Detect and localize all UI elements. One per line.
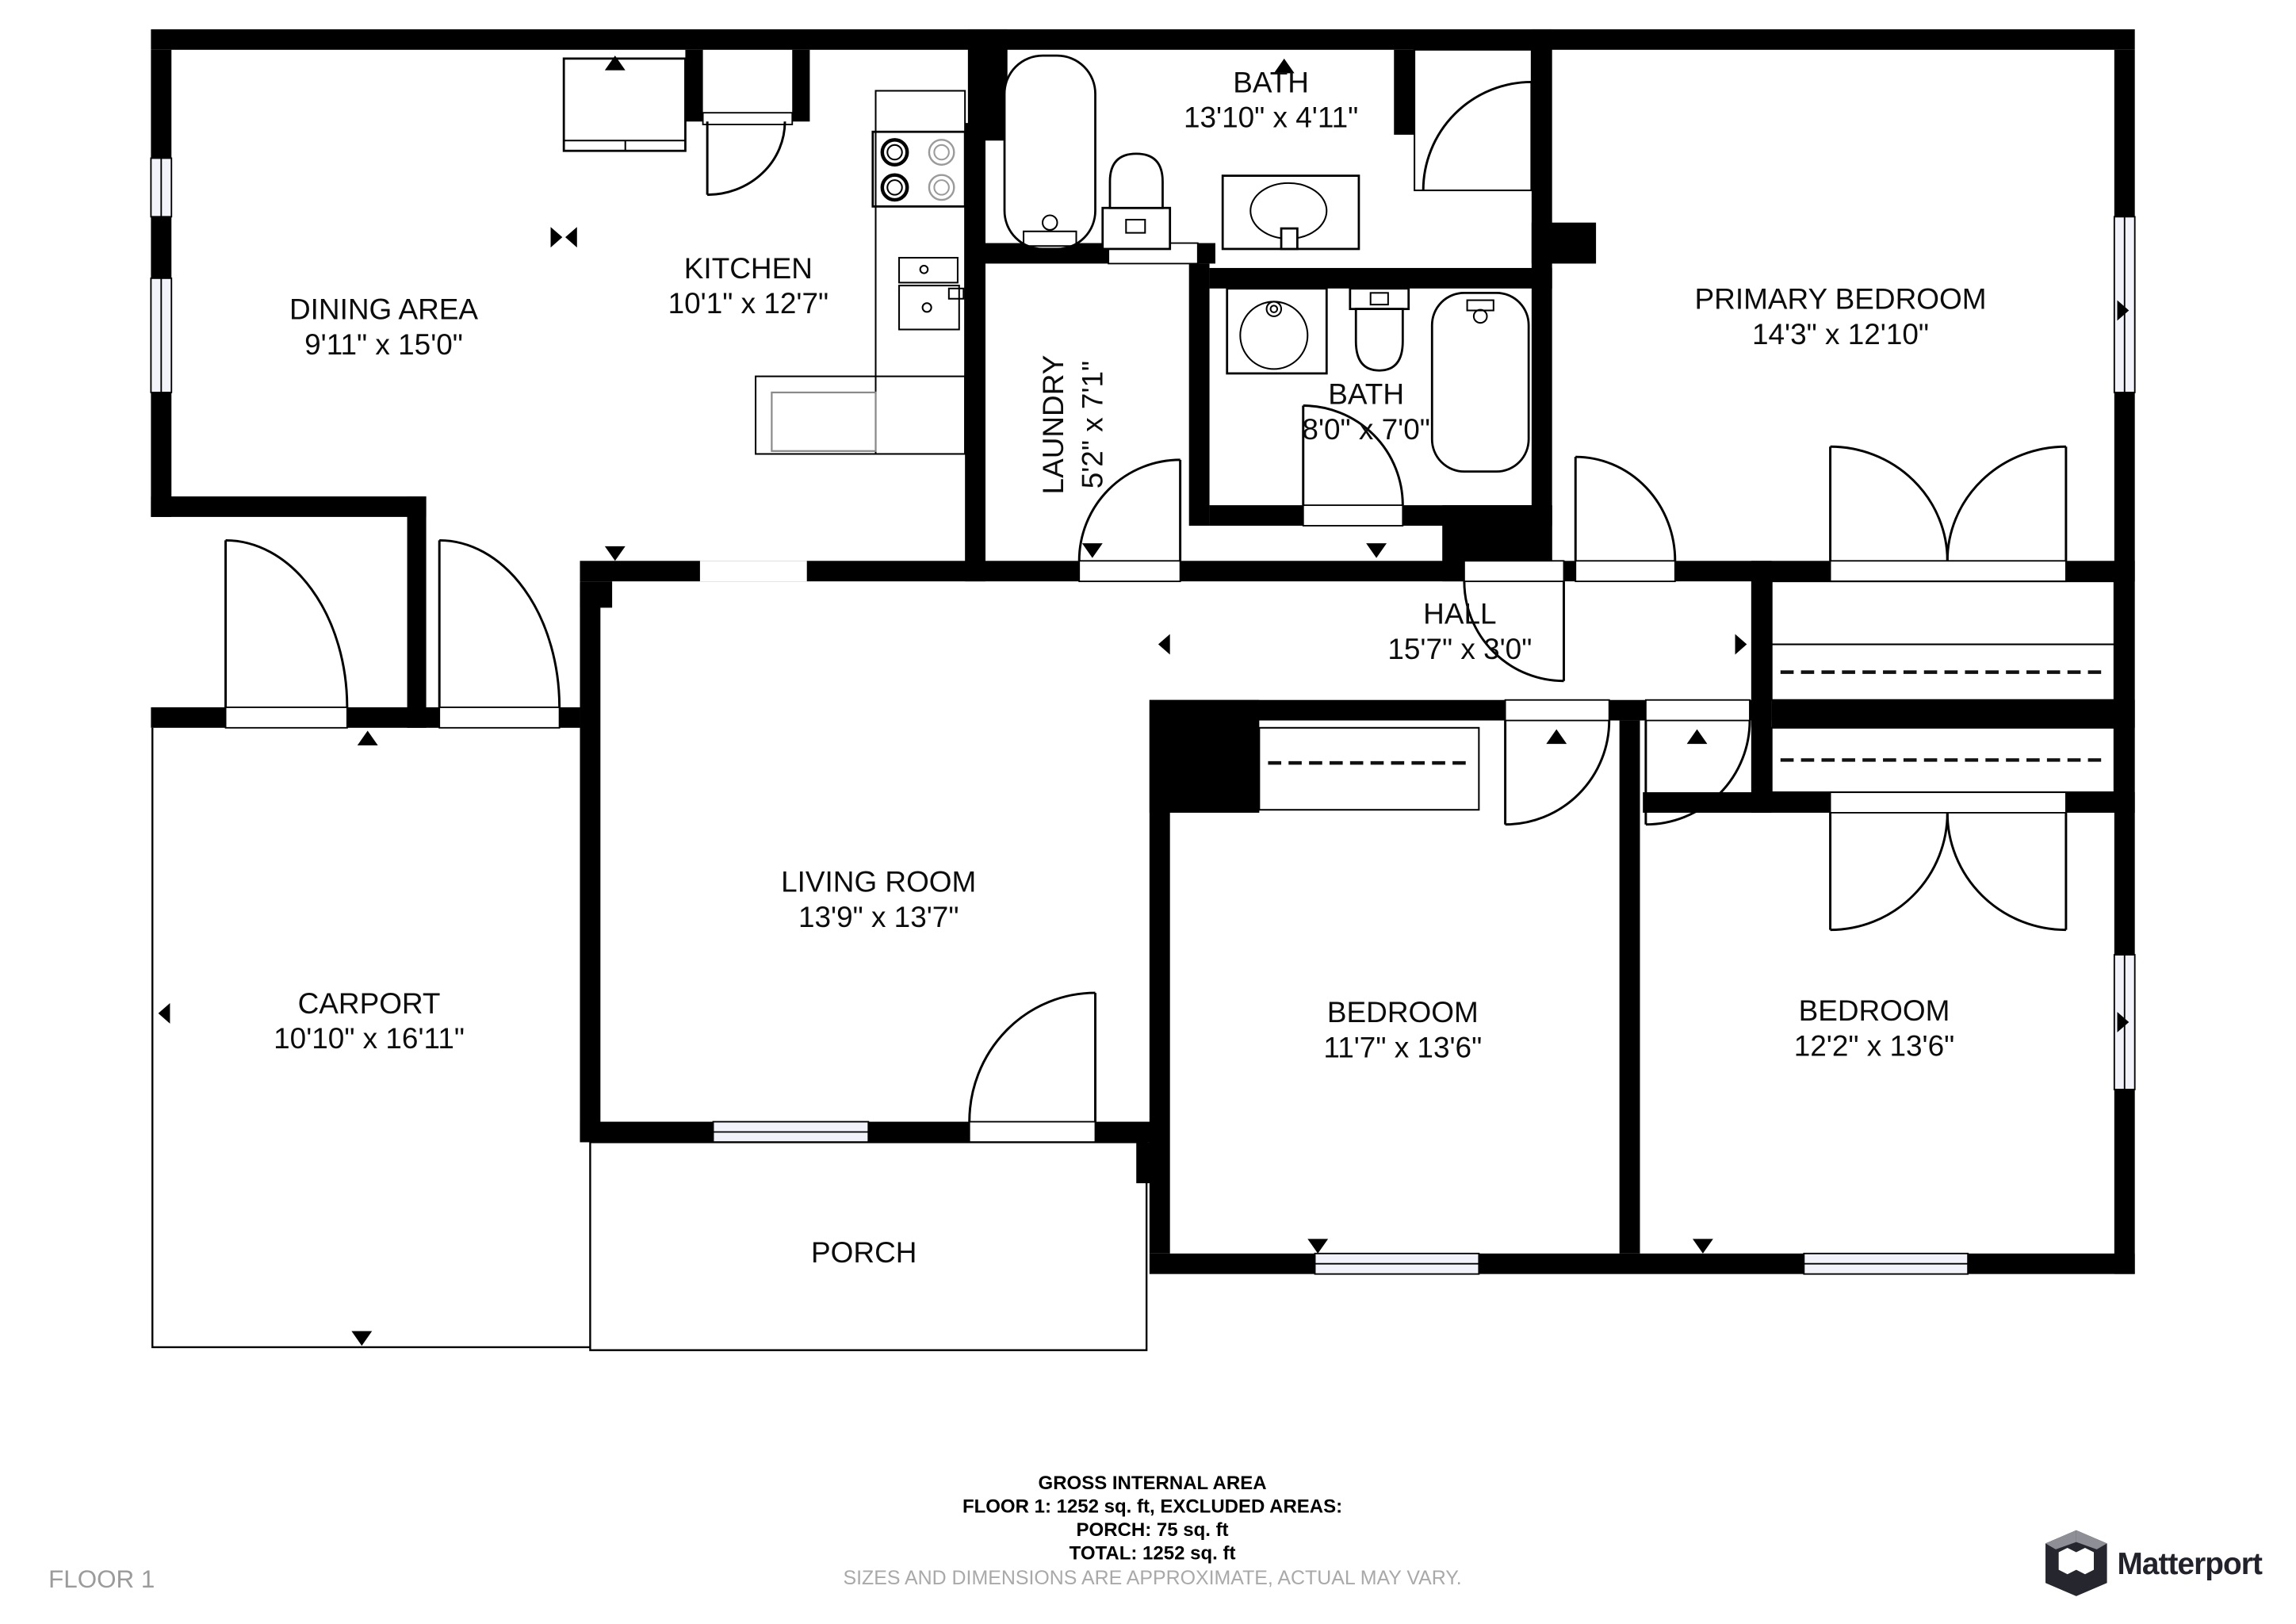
marker-down-icon (351, 1331, 372, 1346)
kitchen-sink-icon (899, 258, 963, 329)
primary-closet-doors-icon (1831, 446, 2066, 561)
total-area-line: TOTAL: 1252 sq. ft (1070, 1543, 1236, 1565)
room-dims-bedroom-right: 12'2" x 13'6" (1794, 1029, 1955, 1062)
bedroom-mid-closet (1259, 728, 1479, 810)
room-label-porch: PORCH (811, 1236, 916, 1269)
vestibule-door-left-icon (226, 540, 347, 707)
hall-toilet-icon (1350, 289, 1409, 370)
room-label-bedroom-mid: BEDROOM (1327, 996, 1479, 1028)
marker-left-icon (1158, 634, 1170, 655)
stove-icon (873, 132, 965, 206)
toilet-icon (1103, 154, 1170, 249)
bedroom-right-closet-doors-icon (1831, 813, 2066, 930)
hall-door-icon (1464, 581, 1564, 681)
marker-right-icon (551, 227, 563, 247)
door-thresholds (226, 113, 2066, 1142)
floorplan-canvas: DINING AREA 9'11" x 15'0" KITCHEN 10'1" … (0, 0, 2296, 1624)
marker-left-icon (565, 227, 577, 247)
marker-up-icon (1546, 730, 1567, 744)
room-dims-hall: 15'7" x 3'0" (1387, 633, 1532, 665)
room-label-living: LIVING ROOM (781, 866, 976, 898)
disclaimer-text: SIZES AND DIMENSIONS ARE APPROXIMATE, AC… (843, 1567, 1461, 1589)
room-label-carport: CARPORT (298, 987, 441, 1020)
matterport-mark-icon (2045, 1530, 2107, 1596)
vestibule-door-right-icon (439, 540, 559, 707)
closets (1259, 581, 2114, 810)
marker-up-icon (1687, 730, 1708, 744)
room-dims-carport: 10'10" x 16'11" (274, 1022, 465, 1055)
hall-bath-sink-icon (1227, 289, 1327, 373)
marker-down-icon (605, 546, 626, 561)
bedroom-right-closet (1772, 728, 2114, 792)
primary-closet (1772, 581, 2114, 700)
marker-right-icon (1735, 634, 1747, 655)
primary-bedroom-door-icon (1575, 457, 1675, 561)
footer: GROSS INTERNAL AREA FLOOR 1: 1252 sq. ft… (48, 1473, 1462, 1593)
matterport-logo: Matterport (2045, 1530, 2263, 1596)
hall-bathtub-icon (1432, 293, 1529, 471)
pantry-door-icon (707, 121, 785, 194)
room-label-kitchen: KITCHEN (684, 252, 813, 285)
gross-internal-area-title: GROSS INTERNAL AREA (1039, 1473, 1267, 1494)
room-label-bath-top: BATH (1233, 66, 1309, 98)
front-door-icon (970, 993, 1096, 1122)
room-dims-bath-hall: 8'0" x 7'0" (1302, 413, 1429, 446)
room-label-dining: DINING AREA (289, 293, 478, 326)
room-label-laundry: LAUNDRY (1037, 355, 1070, 495)
room-dims-bedroom-mid: 11'7" x 13'6" (1323, 1031, 1482, 1063)
marker-down-icon (1366, 543, 1387, 557)
bathtub-icon (1004, 56, 1095, 249)
room-dims-primary: 14'3" x 12'10" (1752, 318, 1929, 350)
room-dims-laundry: 5'2" x 7'1" (1077, 361, 1109, 488)
room-label-primary: PRIMARY BEDROOM (1695, 283, 1987, 316)
room-dims-kitchen: 10'1" x 12'7" (668, 287, 828, 320)
floor-area-line: FLOOR 1: 1252 sq. ft, EXCLUDED AREAS: (962, 1496, 1342, 1518)
room-dims-living: 13'9" x 13'7" (798, 901, 959, 933)
marker-left-icon (159, 1003, 170, 1024)
shower-icon (1414, 50, 1532, 190)
room-label-hall: HALL (1423, 598, 1496, 630)
marker-down-icon (1693, 1239, 1713, 1253)
matterport-wordmark: Matterport (2118, 1547, 2263, 1581)
marker-down-icon (1307, 1239, 1328, 1253)
bathroom-sink-icon (1223, 176, 1359, 249)
porch-area-line: PORCH: 75 sq. ft (1077, 1519, 1229, 1541)
room-label-bath-hall: BATH (1328, 378, 1404, 411)
room-dims-dining: 9'11" x 15'0" (304, 328, 463, 361)
room-label-bedroom-right: BEDROOM (1799, 994, 1950, 1027)
floor-number-label: FLOOR 1 (48, 1565, 155, 1593)
marker-up-icon (358, 731, 378, 745)
room-dims-bath-top: 13'10" x 4'11" (1184, 101, 1358, 134)
marker-down-icon (1082, 543, 1103, 557)
shower-door-icon (1423, 82, 1532, 190)
fridge-icon (564, 59, 685, 151)
